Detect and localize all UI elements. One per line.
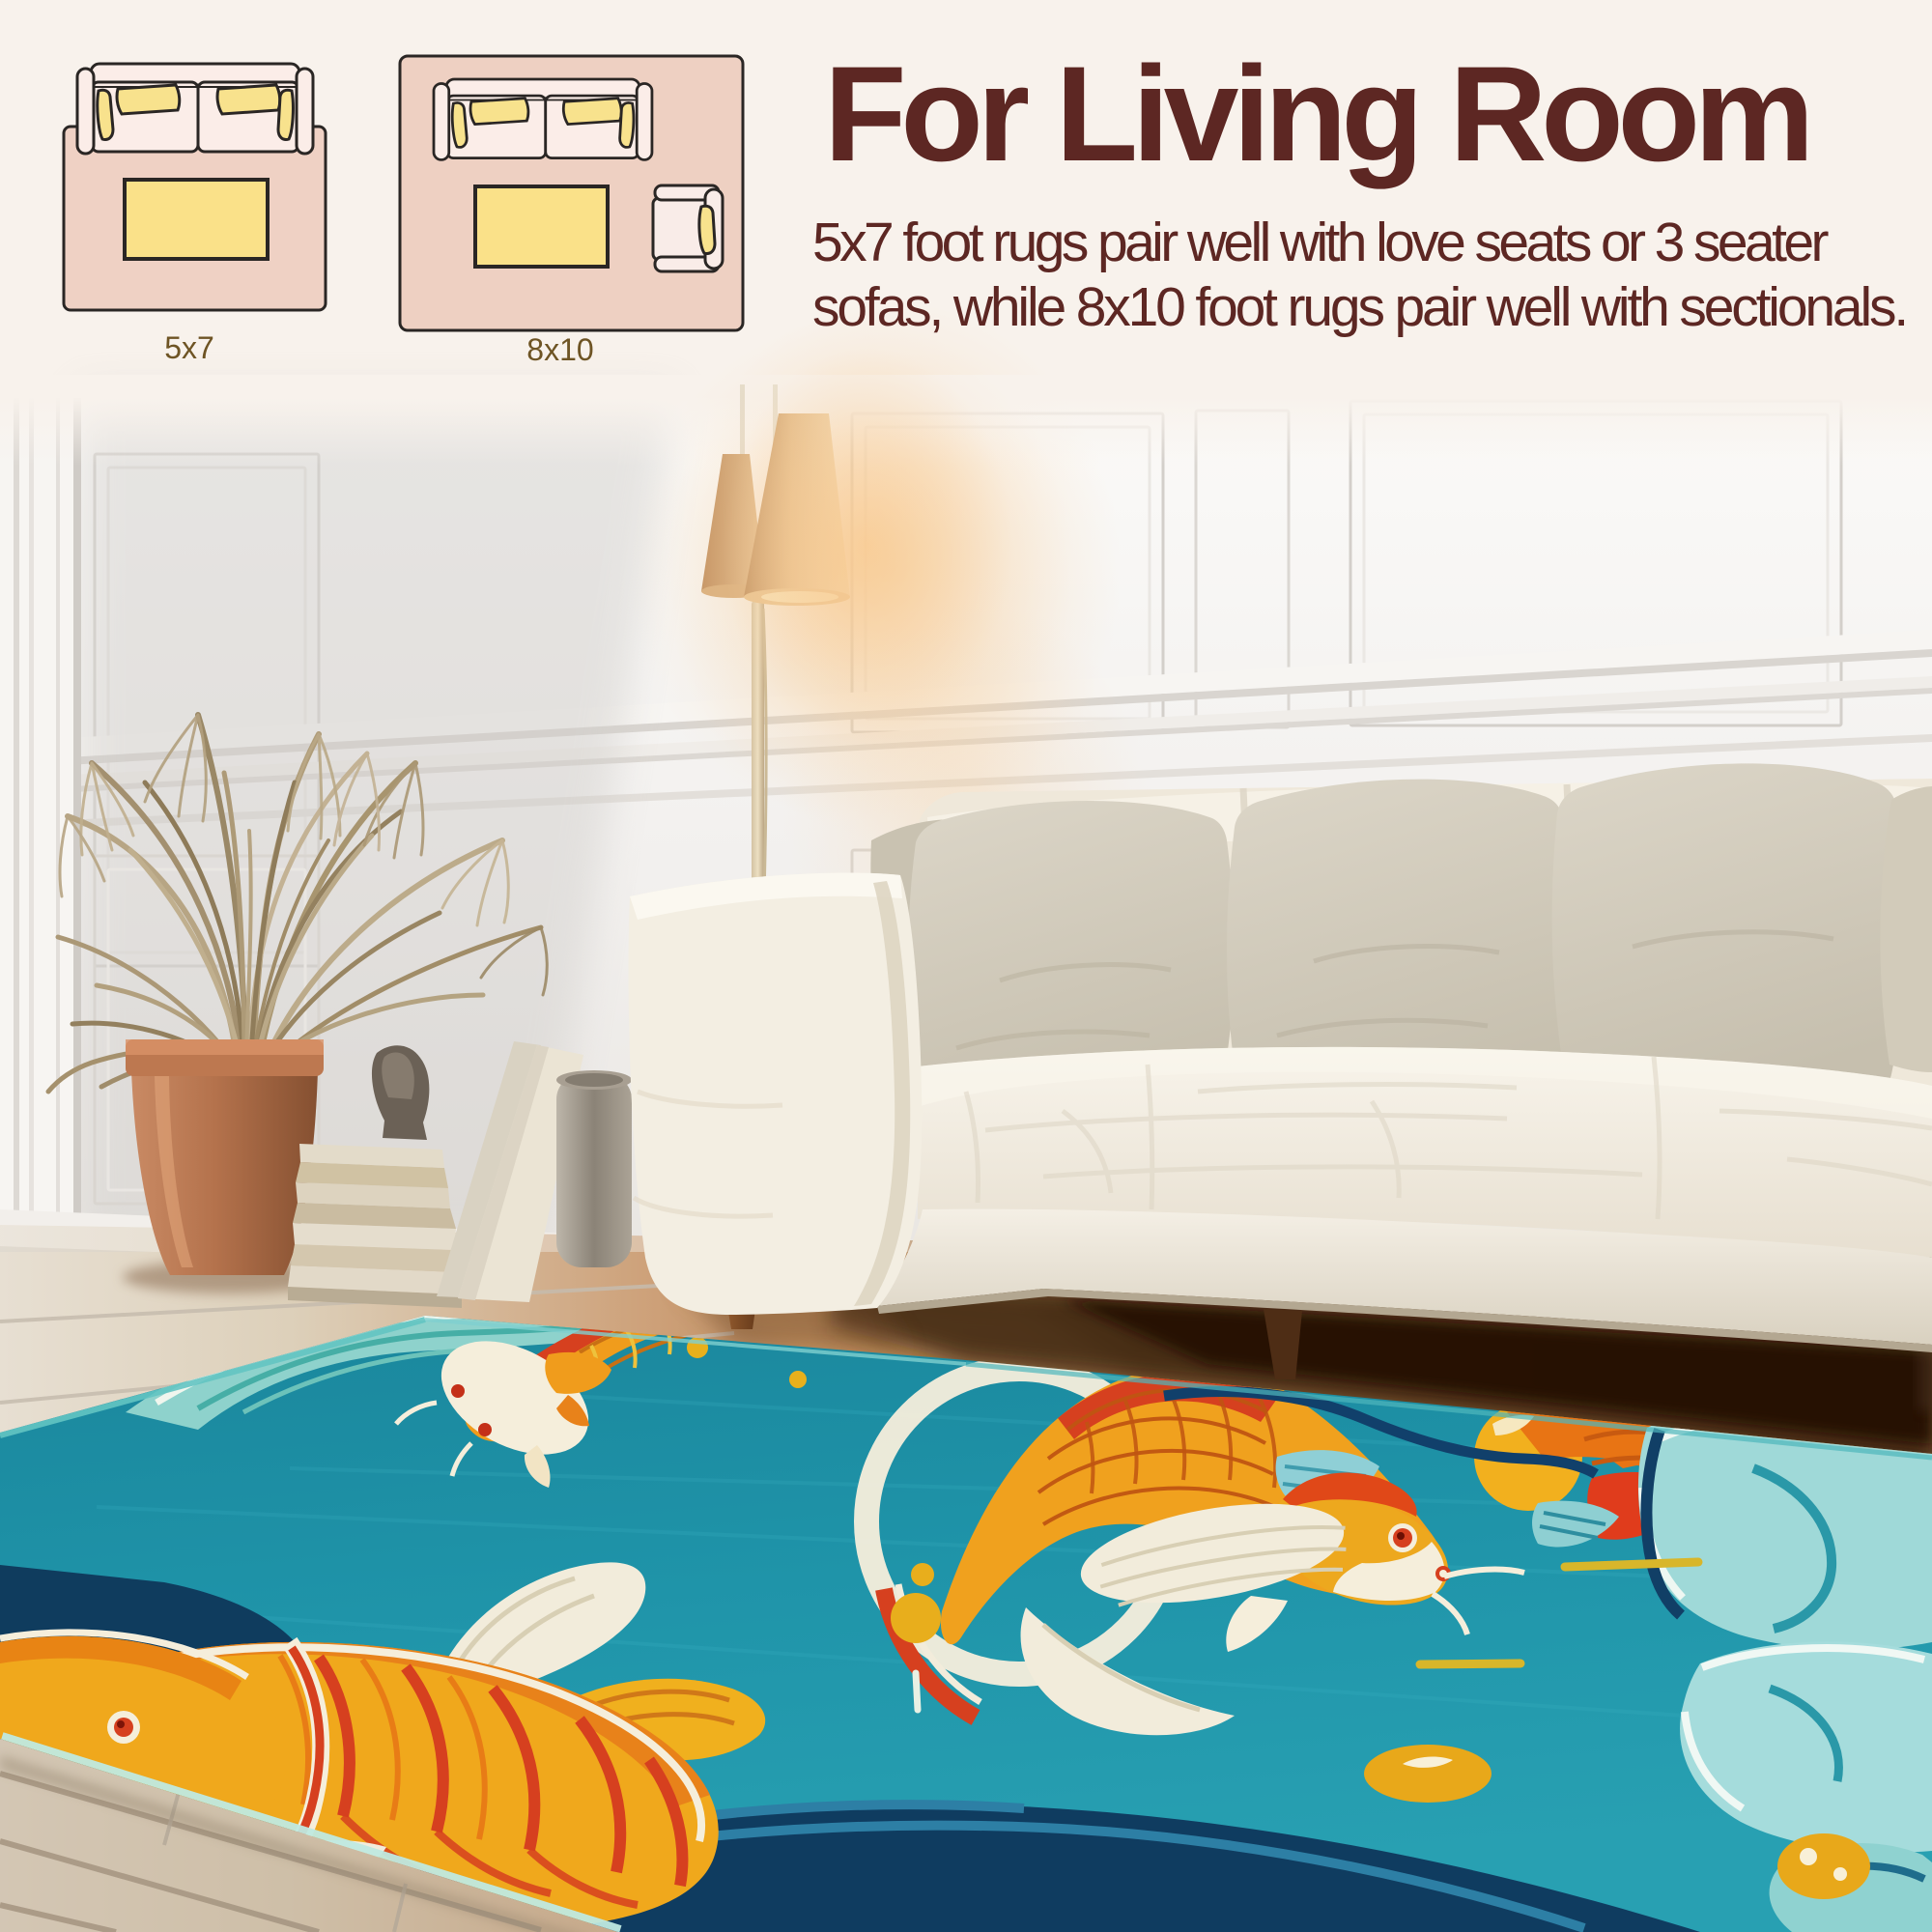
svg-text:8x10: 8x10 bbox=[526, 332, 593, 367]
svg-text:5x7: 5x7 bbox=[164, 330, 214, 365]
svg-text:5x7 foot rugs pair well with l: 5x7 foot rugs pair well with love seats … bbox=[812, 212, 1829, 273]
svg-text:For Living Room: For Living Room bbox=[824, 38, 1808, 189]
svg-text:sofas, while 8x10 foot rugs pa: sofas, while 8x10 foot rugs pair well wi… bbox=[812, 276, 1906, 338]
